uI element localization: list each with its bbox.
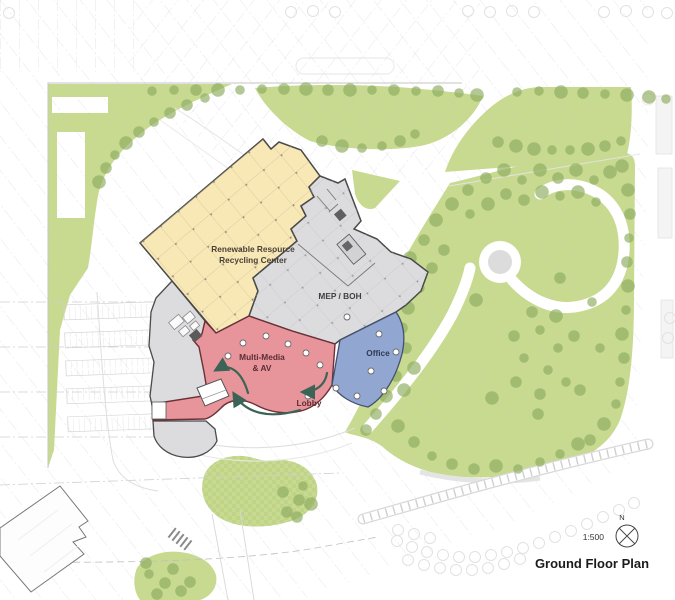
survey-verticals: [0, 0, 150, 72]
corridor-end-room: [152, 402, 166, 419]
north-label: N: [619, 513, 624, 522]
plaza-circle: [488, 250, 512, 274]
scale-label: 1:500: [583, 532, 605, 542]
ground-floor-plan-drawing: Renewable Resource Recycling Center MEP …: [0, 0, 675, 600]
label-office: Office: [366, 348, 390, 358]
label-recycling-line1: Renewable Resource: [211, 244, 295, 254]
label-mep: MEP / BOH: [318, 291, 361, 301]
label-lobby: Lobby: [297, 398, 322, 408]
label-multimedia-line1: Multi-Media: [239, 352, 285, 362]
label-recycling-line2: Recycling Center: [219, 255, 288, 265]
label-multimedia-line2: & AV: [253, 363, 272, 373]
plan-title: Ground Floor Plan: [535, 556, 649, 571]
